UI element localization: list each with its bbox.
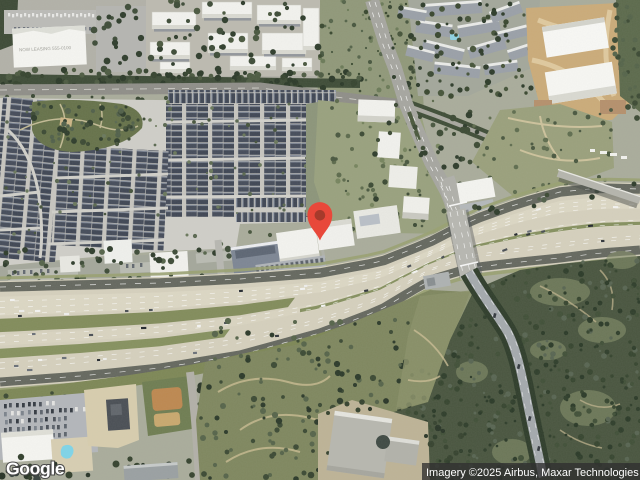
svg-text:Imagery ©2025 Airbus, Maxar Te: Imagery ©2025 Airbus, Maxar Technologies [426,467,639,479]
svg-text:Google: Google [6,459,65,479]
